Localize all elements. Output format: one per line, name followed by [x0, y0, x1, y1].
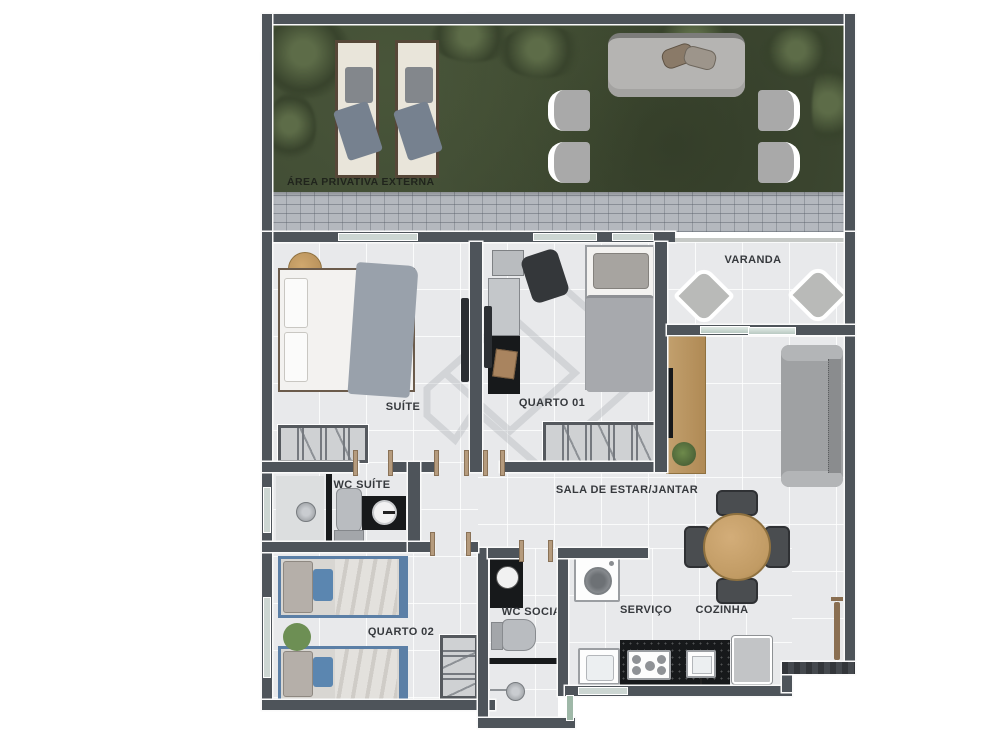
stove: [627, 650, 671, 680]
wcsuite-toilet: [336, 488, 362, 534]
window-q2: [263, 597, 271, 678]
shower-head: [296, 502, 316, 522]
garden-chair: [758, 90, 800, 131]
sofa-back: [828, 359, 841, 473]
wall-wcsuite-bottom: [262, 542, 408, 552]
entry-doormat-wall: [782, 662, 855, 674]
washer-drum: [584, 567, 612, 595]
lounger-blanket: [333, 101, 383, 162]
wcsocial-shower-head-2: [506, 682, 525, 701]
q2-bed: [278, 556, 408, 618]
entry-door-hinge: [831, 597, 843, 601]
bed-duvet: [335, 649, 397, 699]
wall-q1-bottom: [500, 462, 667, 472]
window-side-green: [566, 695, 574, 721]
wall-wcsocial-right: [558, 548, 568, 696]
q1-bed: [585, 245, 655, 390]
window-q1-b: [612, 233, 654, 241]
tree: [498, 26, 586, 78]
burner: [632, 666, 641, 675]
room-label-quarto02: QUARTO 02: [368, 626, 434, 638]
lounger-blanket: [393, 101, 443, 162]
fridge: [732, 636, 772, 684]
wall-wcsocial-bottom: [478, 718, 575, 728]
wcsuite-divider: [326, 474, 332, 544]
garden-wall-right: [845, 14, 855, 238]
q1-door-leaf: [484, 306, 492, 368]
living-sofa: [781, 345, 843, 487]
washing-machine: [574, 556, 620, 602]
sofa-arm: [781, 471, 843, 487]
bed-blanket: [347, 262, 418, 398]
door-jamb: [483, 450, 488, 476]
bed-cushion: [313, 569, 333, 601]
bed-pillow: [283, 561, 313, 613]
room-label-cozinha: COZINHA: [696, 604, 749, 616]
burner: [645, 661, 655, 671]
tank-basin: [586, 655, 614, 681]
room-label-suite: SUÍTE: [386, 401, 420, 413]
door-jamb: [548, 540, 553, 562]
bed-pillow: [284, 332, 308, 382]
wall-right: [845, 232, 855, 672]
door-jamb: [519, 540, 524, 562]
wcsocial-glass-divider: [488, 658, 558, 664]
lounger-pillow: [345, 67, 373, 103]
bed-pillow: [283, 651, 313, 697]
suite-bed: [278, 268, 415, 392]
dining-chair: [716, 578, 758, 604]
wall-suite-bottom-a: [262, 462, 358, 472]
room-label-wc-suite: WC SUÍTE: [334, 479, 391, 491]
varanda-sliding-door: [700, 326, 750, 334]
room-label-area-externa: ÁREA PRIVATIVA EXTERNA: [287, 176, 434, 188]
sink-basin: [692, 656, 712, 674]
q1-wardrobe: [543, 422, 658, 464]
wall-servico-top: [558, 548, 648, 558]
wcsocial-toilet: [502, 619, 536, 651]
paved-walkway: [272, 192, 845, 232]
q1-shelf: [492, 250, 524, 276]
sun-lounger: [395, 40, 439, 178]
tree: [268, 92, 316, 164]
kitchen-sink: [686, 650, 716, 678]
bed-duvet: [586, 295, 654, 392]
washer-knob: [609, 561, 614, 566]
room-label-servico: SERVIÇO: [620, 604, 672, 616]
laundry-tank: [578, 648, 620, 685]
burner: [657, 655, 666, 664]
room-label-quarto01: QUARTO 01: [519, 397, 585, 409]
wcsuite-faucet: [383, 511, 395, 514]
plant: [672, 442, 696, 466]
floor-plan-canvas: ÁREA PRIVATIVA EXTERNA SUÍTE QUARTO 01 V…: [0, 0, 1000, 750]
sink-faucet: [700, 678, 702, 686]
suite-door-leaf: [461, 298, 469, 382]
garden-chair: [548, 142, 590, 183]
garden-wall-left: [262, 14, 272, 242]
window-wcsuite: [263, 487, 271, 533]
burner: [657, 666, 666, 675]
dining-table: [703, 513, 771, 581]
tree: [812, 60, 848, 156]
wall-wcsuite-right: [408, 462, 420, 552]
q2-rug: [283, 623, 311, 651]
bed-pillow: [284, 278, 308, 328]
window-servico: [578, 687, 628, 695]
sun-lounger: [335, 40, 379, 178]
wall-q1-varanda: [655, 242, 667, 472]
tv: [666, 368, 673, 438]
q2-bed: [278, 646, 408, 702]
wall-wcsocial-top: [488, 548, 522, 558]
entry-door-leaf: [834, 602, 840, 660]
q1-dresser: [488, 278, 520, 336]
q1-decor-box: [492, 349, 518, 380]
burner: [632, 655, 641, 664]
lounger-pillow: [405, 67, 433, 103]
wall-q2-bottom: [262, 700, 495, 710]
room-label-varanda: VARANDA: [725, 254, 782, 266]
bed-cushion: [313, 657, 333, 687]
door-jamb: [430, 532, 435, 556]
door-jamb: [388, 450, 393, 476]
door-jamb: [500, 450, 505, 476]
garden-chair: [548, 90, 590, 131]
wcsocial-shower-head: [496, 566, 519, 589]
door-jamb: [466, 532, 471, 556]
door-jamb: [434, 450, 439, 476]
varanda-sliding-door: [748, 327, 796, 335]
bed-duvet: [335, 559, 397, 615]
varanda-step: [675, 238, 845, 242]
door-jamb: [464, 450, 469, 476]
window-q1-a: [533, 233, 597, 241]
garden-wall-top: [262, 14, 855, 24]
room-label-sala: SALA DE ESTAR/JANTAR: [556, 484, 698, 496]
door-jamb: [353, 450, 358, 476]
bed-pillow: [593, 253, 649, 289]
wall-wcsocial-left: [478, 548, 488, 728]
wall-suite-q1: [470, 242, 482, 472]
window-suite: [338, 233, 418, 241]
q2-wardrobe: [440, 635, 478, 699]
garden-chair: [758, 142, 800, 183]
